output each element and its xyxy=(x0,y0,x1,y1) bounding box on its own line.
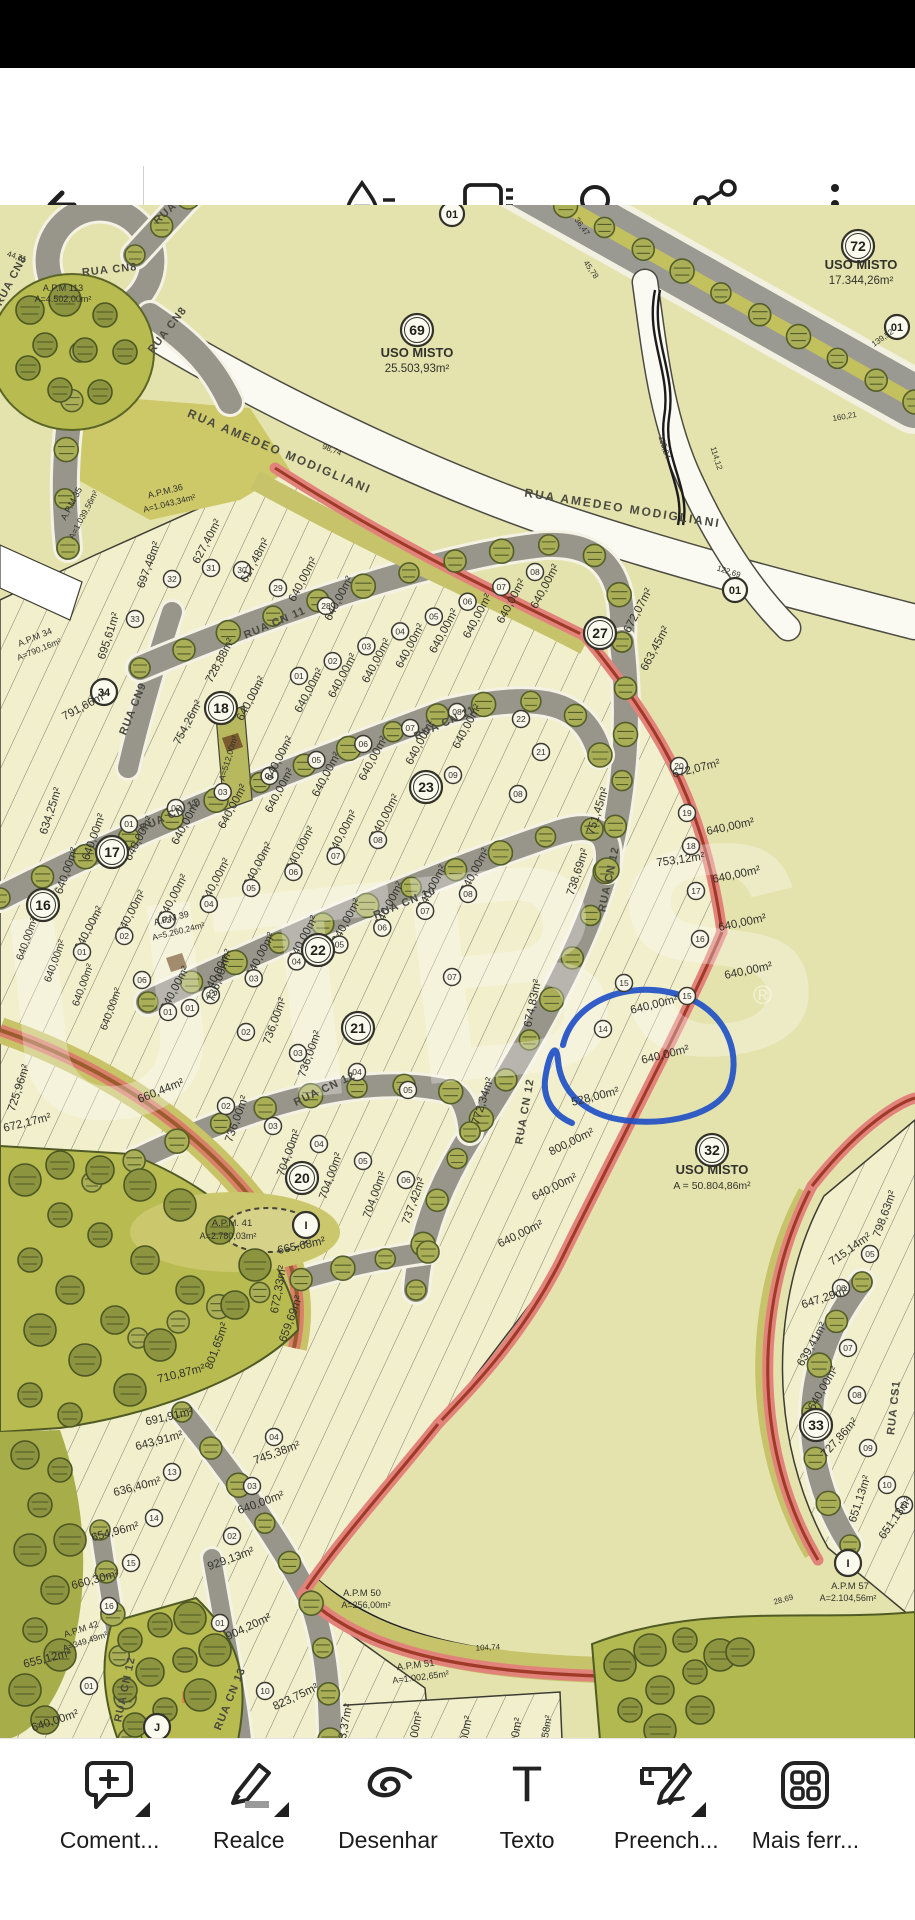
lot-number: 02 xyxy=(120,931,130,941)
lot-number: 17 xyxy=(691,886,701,896)
tree-icon xyxy=(118,1628,142,1652)
fill-sign-icon xyxy=(634,1753,698,1817)
tree-icon xyxy=(144,1329,176,1361)
lot-number: 04 xyxy=(292,956,302,966)
tree-icon xyxy=(16,356,40,380)
tree-icon xyxy=(18,1383,42,1407)
text-icon: T xyxy=(495,1753,559,1817)
tree-icon xyxy=(426,1189,448,1211)
more-tools-icon xyxy=(773,1753,837,1817)
tree-icon xyxy=(58,1403,82,1427)
tree-icon xyxy=(200,1437,222,1459)
lot-number: 29 xyxy=(273,583,283,593)
tool-more[interactable]: Mais ferr... xyxy=(736,1753,875,1920)
lot-number: 05 xyxy=(865,1249,875,1259)
lot-number: 06 xyxy=(401,1175,411,1185)
tree-icon xyxy=(14,1534,46,1566)
fill-sign-submenu-triangle xyxy=(691,1802,706,1817)
tree-icon xyxy=(174,1602,206,1634)
tree-icon xyxy=(406,1280,426,1300)
lot-number: 05 xyxy=(403,1085,413,1095)
block-number: 69 xyxy=(409,322,425,338)
tool-draw-label: Desenhar xyxy=(338,1827,438,1854)
tree-icon xyxy=(539,535,559,555)
lot-number: 16 xyxy=(104,1601,114,1611)
lot-number: 06 xyxy=(289,867,299,877)
tree-icon xyxy=(173,639,195,661)
block-number: 22 xyxy=(310,942,326,958)
lot-number: 03 xyxy=(268,1121,278,1131)
tree-icon xyxy=(644,1714,676,1738)
tree-icon xyxy=(618,1698,642,1722)
lot-number: 07 xyxy=(331,851,341,861)
lot-number: 13 xyxy=(167,1467,177,1477)
tree-icon xyxy=(88,380,112,404)
lot-number: 15 xyxy=(126,1558,136,1568)
tree-icon xyxy=(604,1649,636,1681)
tree-icon xyxy=(88,1223,112,1247)
map-label: A.P.M 57 xyxy=(831,1581,869,1592)
lot-number: 33 xyxy=(130,614,140,624)
tree-icon xyxy=(852,1272,872,1292)
acrobat-mobile-screen: UTBS®640,00m²01640,00m²02640,00m²03640,0… xyxy=(0,0,915,1920)
tree-icon xyxy=(521,691,541,711)
tree-icon xyxy=(299,1591,323,1615)
annotation-toolbar: Coment... Realce Desenhar T Texto xyxy=(0,1738,915,1920)
lot-number: 02 xyxy=(221,1101,231,1111)
lot-number: 02 xyxy=(328,656,338,666)
tree-icon xyxy=(199,1634,231,1666)
tree-icon xyxy=(612,771,632,791)
tree-icon xyxy=(101,1306,129,1334)
tree-icon xyxy=(221,1291,249,1319)
tree-icon xyxy=(167,1311,189,1333)
block-number: 33 xyxy=(808,1417,824,1433)
tree-icon xyxy=(749,304,771,326)
tree-icon xyxy=(490,539,514,563)
tree-icon xyxy=(670,259,694,283)
lot-number: 01 xyxy=(185,1003,195,1013)
block-number: 01 xyxy=(729,585,741,597)
tree-icon xyxy=(686,1696,714,1724)
tree-icon xyxy=(711,283,731,303)
lot-number: 03 xyxy=(293,1048,303,1058)
tool-text-label: Texto xyxy=(500,1827,555,1854)
lot-number: 22 xyxy=(516,714,526,724)
tree-icon xyxy=(93,303,117,327)
block-number: 18 xyxy=(213,700,229,716)
lot-number: 15 xyxy=(619,978,629,988)
tree-icon xyxy=(56,1276,84,1304)
lot-number: 02 xyxy=(227,1531,237,1541)
tree-icon xyxy=(634,1634,666,1666)
tree-icon xyxy=(48,378,72,402)
lot-number: 03 xyxy=(362,641,372,651)
comment-icon xyxy=(78,1753,142,1817)
tree-icon xyxy=(28,1493,52,1517)
lot-number: 10 xyxy=(260,1686,270,1696)
map-label: A.P.M 113 xyxy=(43,283,83,293)
lot-number: 18 xyxy=(686,841,696,851)
tree-icon xyxy=(54,438,78,462)
tree-icon xyxy=(114,1374,146,1406)
tree-icon xyxy=(73,338,97,362)
tool-highlight-label: Realce xyxy=(213,1827,285,1854)
tool-comment[interactable]: Coment... xyxy=(40,1753,179,1920)
tree-icon xyxy=(317,1683,339,1705)
block-number: I xyxy=(846,1558,849,1570)
tree-icon xyxy=(23,1618,47,1642)
tree-icon xyxy=(41,1576,69,1604)
tree-icon xyxy=(69,1344,101,1376)
lot-number: 01 xyxy=(294,671,304,681)
lot-number: 06 xyxy=(378,923,388,933)
map-label: 25.503,93m² xyxy=(385,363,450,375)
map-label: A=256,00m² xyxy=(341,1600,390,1610)
tool-draw[interactable]: Desenhar xyxy=(318,1753,457,1920)
tree-icon xyxy=(33,333,57,357)
tree-icon xyxy=(313,1638,333,1658)
tree-icon xyxy=(614,677,636,699)
tree-icon xyxy=(726,1638,754,1666)
lot-number: 06 xyxy=(137,975,147,985)
map-label: USO MISTO xyxy=(676,1162,749,1177)
block-number: 27 xyxy=(592,625,608,641)
lot-number: 10 xyxy=(882,1480,892,1490)
tree-icon xyxy=(399,563,419,583)
app-bar xyxy=(0,68,915,205)
tool-text[interactable]: T Texto xyxy=(458,1753,597,1920)
tree-icon xyxy=(646,1676,674,1704)
tree-icon xyxy=(614,722,638,746)
document-page-map[interactable]: UTBS®640,00m²01640,00m²02640,00m²03640,0… xyxy=(0,205,915,1738)
tree-icon xyxy=(673,1628,697,1652)
park xyxy=(592,1612,915,1738)
comment-submenu-triangle xyxy=(135,1802,150,1817)
status-bar xyxy=(0,0,915,68)
lot-number: 01 xyxy=(84,1681,94,1691)
block-number: 01 xyxy=(446,209,458,221)
map-label: A.P.M. 41 xyxy=(212,1218,253,1229)
tree-icon xyxy=(583,544,605,566)
tree-icon xyxy=(278,1551,300,1573)
map-label: A=2.104,56m² xyxy=(820,1593,877,1603)
lot-number: 06 xyxy=(359,739,369,749)
tree-icon xyxy=(176,1276,204,1304)
tree-icon xyxy=(444,550,466,572)
lot-number: 02 xyxy=(241,1027,251,1037)
lot-number: 21 xyxy=(536,747,546,757)
block-number: 21 xyxy=(350,1020,366,1036)
lot-number: 05 xyxy=(335,940,345,950)
tree-icon xyxy=(48,1458,72,1482)
lot-number: 08 xyxy=(463,889,473,899)
tree-icon xyxy=(54,1524,86,1556)
tree-icon xyxy=(148,1613,172,1637)
lot-number: 14 xyxy=(149,1513,159,1523)
tree-icon xyxy=(164,1189,196,1221)
lot-number: 04 xyxy=(395,626,405,636)
lot-number: 07 xyxy=(420,906,430,916)
lot-number: 01 xyxy=(77,947,87,957)
lot-number: 14 xyxy=(598,1024,608,1034)
tree-icon xyxy=(9,1674,41,1706)
lot-number: 04 xyxy=(269,1432,279,1442)
tree-icon xyxy=(131,1246,159,1274)
tree-icon xyxy=(130,658,150,678)
tree-icon xyxy=(594,217,614,237)
tree-icon xyxy=(290,1269,312,1291)
map-label: 104,74 xyxy=(475,1642,500,1652)
lot-number: 05 xyxy=(246,883,256,893)
plat-map-svg: UTBS®640,00m²01640,00m²02640,00m²03640,0… xyxy=(0,205,915,1738)
lot-number: 15 xyxy=(682,991,692,1001)
highlight-icon xyxy=(217,1753,281,1817)
lot-number: 05 xyxy=(358,1156,368,1166)
lot-number: 08 xyxy=(513,789,523,799)
tree-icon xyxy=(351,574,375,598)
tree-icon xyxy=(136,1658,164,1686)
tool-fill-sign[interactable]: Preench... xyxy=(597,1753,736,1920)
lot-number: 07 xyxy=(843,1343,853,1353)
lot-number: 03 xyxy=(249,973,259,983)
tree-icon xyxy=(57,537,79,559)
tree-icon xyxy=(18,1248,42,1272)
tree-icon xyxy=(173,1648,197,1672)
tree-icon xyxy=(588,743,612,767)
lot-number: 05 xyxy=(429,612,439,622)
map-label: A=4.502,00m² xyxy=(35,294,92,304)
lot-number: 09 xyxy=(448,770,458,780)
highlight-submenu-triangle xyxy=(274,1802,289,1817)
lot-number: 07 xyxy=(497,582,507,592)
tree-icon xyxy=(11,1441,39,1469)
tool-highlight[interactable]: Realce xyxy=(179,1753,318,1920)
map-label: A=2.780,03m² xyxy=(200,1231,257,1241)
lot-number: 09 xyxy=(863,1443,873,1453)
map-label: 17.344,26m² xyxy=(829,275,894,287)
lot-number: 01 xyxy=(124,819,134,829)
tree-icon xyxy=(447,1149,467,1169)
lot-number: 08 xyxy=(373,835,383,845)
tree-icon xyxy=(24,1314,56,1346)
tree-icon xyxy=(683,1660,707,1684)
tree-icon xyxy=(331,1256,355,1280)
tree-icon xyxy=(375,1249,395,1269)
tree-icon xyxy=(255,1513,275,1533)
lot-number: 07 xyxy=(447,972,457,982)
lot-number: 19 xyxy=(682,808,692,818)
tree-icon xyxy=(865,369,887,391)
tool-fill-sign-label: Preench... xyxy=(614,1827,719,1854)
block-number: 32 xyxy=(704,1142,720,1158)
tree-icon xyxy=(787,325,811,349)
map-label: A.P.M 50 xyxy=(343,1588,381,1599)
tree-icon xyxy=(113,340,137,364)
lot-number: 06 xyxy=(463,597,473,607)
block-number: 72 xyxy=(850,238,866,254)
map-label: USO MISTO xyxy=(381,345,454,360)
tree-icon xyxy=(250,1282,270,1302)
lot-number: 03 xyxy=(218,787,228,797)
tool-more-label: Mais ferr... xyxy=(752,1827,859,1854)
draw-icon xyxy=(356,1753,420,1817)
tree-icon xyxy=(816,1491,840,1515)
block-number: 23 xyxy=(418,779,434,795)
tree-icon xyxy=(607,583,631,607)
tool-comment-label: Coment... xyxy=(60,1827,160,1854)
lot-number: 01 xyxy=(163,1007,173,1017)
lot-number: 04 xyxy=(314,1139,324,1149)
svg-text:T: T xyxy=(512,1756,543,1812)
tree-icon xyxy=(827,348,847,368)
tree-icon xyxy=(184,1679,216,1711)
lot-number: 31 xyxy=(206,563,216,573)
tree-icon xyxy=(239,1249,271,1281)
lot-number: 08 xyxy=(852,1390,862,1400)
tree-icon xyxy=(632,238,654,260)
block-number: J xyxy=(154,1722,160,1734)
lot-number: 08 xyxy=(530,567,540,577)
block-number: I xyxy=(304,1220,307,1232)
block-number: 16 xyxy=(35,897,51,913)
tree-icon xyxy=(417,1241,439,1263)
watermark-reg: ® xyxy=(753,980,772,1010)
block-number: 17 xyxy=(104,844,120,860)
map-label: A = 50.804,86m² xyxy=(673,1180,751,1192)
map-label: USO MISTO xyxy=(825,257,898,272)
tree-icon xyxy=(825,1310,847,1332)
block-number: 20 xyxy=(294,1170,310,1186)
lot-number: 03 xyxy=(247,1481,257,1491)
tree-icon xyxy=(564,704,586,726)
lot-number: 32 xyxy=(167,574,177,584)
lot-number: 05 xyxy=(312,755,322,765)
lot-number: 01 xyxy=(215,1618,225,1628)
lot-number: 16 xyxy=(695,934,705,944)
tree-icon xyxy=(48,1203,72,1227)
lot-number: 04 xyxy=(204,899,214,909)
